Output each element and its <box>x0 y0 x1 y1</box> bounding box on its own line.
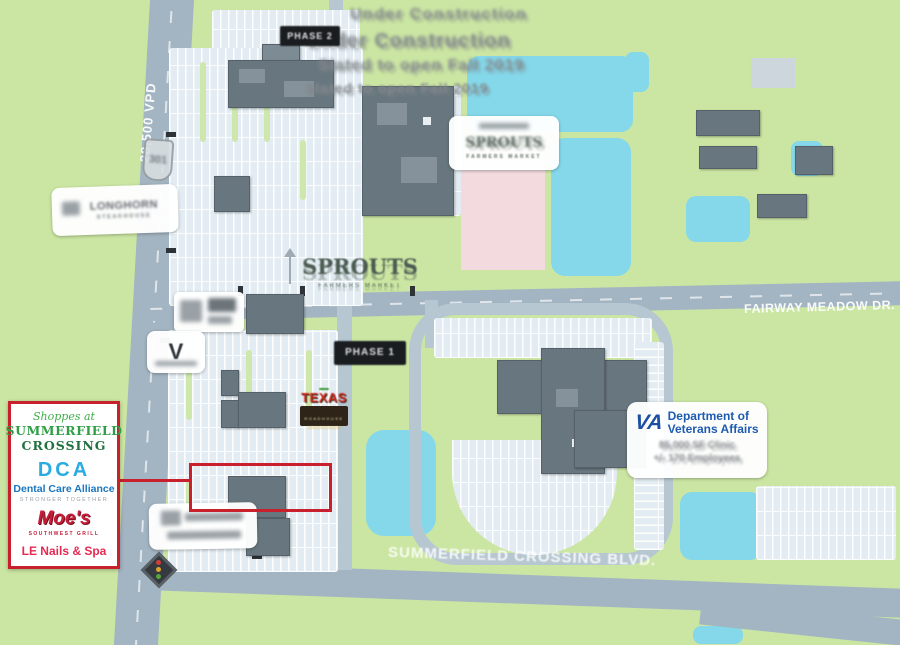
fairway-meadow-label: FAIRWAY MEADOW DR. <box>744 298 895 316</box>
route-number: 301 <box>148 153 167 166</box>
sprouts-sign: SPROUTS FARMERS MARKET <box>449 116 559 170</box>
moes-sub: SOUTHWEST GRILL <box>29 531 100 537</box>
legend-title2: CROSSING <box>22 438 107 453</box>
illegible-logo <box>208 316 232 324</box>
pond <box>693 626 743 644</box>
roadhouse-band: ROADHOUSE <box>300 406 347 426</box>
landscape-island <box>300 140 306 200</box>
logo-squiggle <box>479 123 529 129</box>
rooftop-unit <box>556 389 578 407</box>
signal-yellow <box>156 567 161 572</box>
logo-flourish <box>307 427 341 428</box>
phase-1-badge: PHASE 1 <box>334 341 406 365</box>
va-sign: VA Department of Veterans Affairs 85,000… <box>627 402 767 478</box>
traffic-signal-icon <box>139 550 179 590</box>
illegible-logo <box>161 510 181 525</box>
longhorn-name: LONGHORN <box>90 199 159 213</box>
sprouts-sign-sub: FARMERS MARKET <box>466 154 541 160</box>
building <box>696 110 760 136</box>
va-name-line2: Veterans Affairs <box>668 423 759 436</box>
pond <box>551 138 631 276</box>
callout-line <box>118 479 190 482</box>
signal-green <box>156 574 161 579</box>
legend-sign: Shoppes at SUMMERFIELD CROSSING DCA Dent… <box>8 401 120 569</box>
dca-name: Dental Care Alliance <box>13 483 114 495</box>
driveway-marker <box>166 248 176 253</box>
sprouts-sub: FARMERS MARKET <box>318 283 402 289</box>
pond <box>686 196 750 242</box>
v-logo-sign: V <box>147 331 205 373</box>
texas-sub: ROADHOUSE <box>304 416 343 421</box>
steer-skull-icon <box>62 201 80 216</box>
building-texas-roadhouse <box>238 392 286 428</box>
longhorn-sign: LONGHORN STEAKHOUSE <box>51 184 179 236</box>
sprouts-map-label: SPROUTS FARMERS MARKET <box>290 254 430 289</box>
illegible-logo <box>208 298 236 312</box>
va-logo-icon: VA <box>634 413 664 433</box>
building <box>214 176 250 212</box>
legend-title1: SUMMERFIELD <box>6 423 123 438</box>
va-detail-2: +/- 170 Employees <box>627 453 767 464</box>
driveway-marker <box>166 132 176 137</box>
illegible-text <box>185 512 243 521</box>
rooftop-unit <box>423 117 431 125</box>
sprouts-sign-name: SPROUTS <box>465 135 542 151</box>
texas-name: TEXAS <box>301 390 347 405</box>
legend-script: Shoppes at <box>33 410 95 423</box>
building <box>699 146 757 169</box>
pond <box>625 52 649 92</box>
rooftop-unit <box>401 157 437 183</box>
building-kiosk <box>221 400 239 428</box>
building-pad <box>751 58 795 88</box>
construction-note: Slated to open Fall 2019 <box>318 57 524 75</box>
pond <box>680 492 762 560</box>
dca-tagline: STRONGER TOGETHER <box>20 497 109 503</box>
arrow-stem <box>289 256 291 284</box>
v-logo-mark: V <box>169 342 184 362</box>
building-retail-strip-mid <box>246 294 304 334</box>
construction-note: Slated to open Fall 2019 <box>305 80 489 96</box>
rooftop-unit <box>377 103 407 125</box>
parking-lot <box>756 486 896 560</box>
texas-roadhouse-logo: TEXAS ROADHOUSE <box>292 388 356 428</box>
sprouts-name: SPROUTS <box>302 254 418 279</box>
moes-logo: Moe's <box>37 508 90 530</box>
building <box>757 194 807 218</box>
tenant-logo-strip <box>174 292 244 332</box>
building-sprouts-anchor <box>362 86 454 216</box>
va-detail-1: 85,000 SF Clinic <box>627 440 767 451</box>
illegible-logo <box>180 300 202 322</box>
route-301-shield-icon: 301 <box>142 138 175 182</box>
construction-note: Under Construction <box>350 6 527 24</box>
signal-red <box>156 560 161 565</box>
building <box>795 146 833 175</box>
dca-logo: DCA <box>38 459 90 482</box>
phase-2-badge: PHASE 2 <box>280 26 340 46</box>
illegible-text <box>167 530 241 539</box>
site-map: 28,500 VPD FAIRWAY MEADOW DR. SUMMERFIEL… <box>0 0 900 645</box>
rooftop-unit <box>239 69 265 83</box>
longhorn-sub: STEAKHOUSE <box>97 213 152 221</box>
illegible-text <box>155 361 197 366</box>
nails-name: LE Nails & Spa <box>22 544 107 558</box>
available-space-outline <box>189 463 332 512</box>
building-kiosk <box>221 370 239 396</box>
landscape-island <box>200 62 206 142</box>
